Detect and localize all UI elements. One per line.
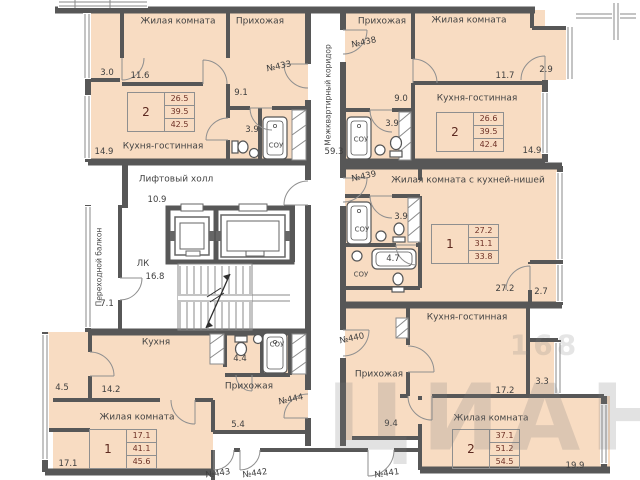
apt439-bath1-label: СОУ: [355, 227, 370, 234]
apt444-living-room-label: Жилая комната: [100, 414, 175, 423]
apt433-area-table: 2 26.5 39.5 42.5: [127, 92, 195, 132]
window: [541, 92, 549, 154]
apt438-living-room-label: Жилая комната: [432, 17, 507, 26]
watermark-logo: ЦИАН: [327, 365, 640, 472]
window: [83, 13, 91, 79]
vent-shaft: [292, 334, 306, 374]
vent-shaft: [408, 198, 420, 242]
apt433-rooms-count: 2: [128, 93, 165, 131]
window: [41, 334, 49, 460]
vent-shaft: [292, 110, 306, 160]
stairwell-label: ЛК: [137, 260, 149, 269]
apt438-balcony-area: 2.9: [539, 66, 553, 75]
toilet: [393, 223, 405, 242]
bathtub: [347, 202, 371, 244]
transfer-balcony-area: 7.1: [100, 300, 114, 309]
apt433-kitchen-area: 14.9: [95, 148, 114, 157]
apt439-area-living: 27.2: [469, 225, 498, 238]
sink: [376, 231, 386, 241]
window: [566, 26, 574, 80]
apt439-area-heated: 31.1: [469, 238, 498, 251]
toilet: [392, 273, 404, 292]
inter-apartment-corridor-area: 59.3: [325, 148, 344, 157]
transfer-balcony-label: Переходной балкон: [95, 228, 103, 307]
watermark-digits: 168: [510, 329, 580, 362]
inter-apartment-corridor-label: Межквартирный коридор: [324, 44, 332, 146]
apt433-bath-area: 3.9: [245, 126, 259, 135]
bathtub: [263, 117, 287, 159]
apt444-balcony-area: 4.5: [55, 384, 69, 393]
apt444-hall-fill: [210, 400, 308, 432]
sink: [250, 149, 259, 158]
apt439-main-room-area: 27.2: [496, 285, 515, 294]
apt439-bath2-area: 4.7: [386, 255, 400, 264]
apt440-kitchen-label: Кухня-гостинная: [427, 314, 508, 323]
window: [84, 206, 92, 328]
apt438-hall-area: 9.0: [394, 95, 408, 104]
apt438-area-table: 2 26.6 39.5 42.4: [436, 112, 504, 152]
apt439-bath1-area: 3.9: [394, 213, 408, 222]
apt438-rooms-count: 2: [437, 113, 474, 151]
apt439-bath2-label: СОУ: [354, 272, 369, 279]
apt438-living-room-area: 11.7: [496, 72, 515, 81]
apt444-area-heated: 41.1: [127, 443, 156, 456]
apt439-area-table: 1 27.2 31.1 33.8: [431, 224, 499, 264]
apt444-rooms-count: 1: [90, 430, 127, 468]
window: [556, 264, 564, 302]
apt438-bath-label: СОУ: [354, 137, 369, 144]
bathtub: [263, 333, 287, 373]
apt433-living-room-label: Жилая комната: [141, 18, 216, 27]
apt438-hall-label: Прихожая: [358, 18, 406, 27]
apt438-kitchen-label: Кухня-гостинная: [437, 95, 518, 104]
lift-hall-label: Лифтовый холл: [139, 176, 214, 185]
apt433-hall-label: Прихожая: [236, 18, 284, 27]
apt444-hall-label: Прихожая: [225, 383, 273, 392]
sink: [352, 251, 362, 261]
sink: [375, 145, 385, 155]
apt444-living-room-area: 17.1: [59, 460, 78, 469]
apt438-area-heated: 39.5: [474, 126, 503, 139]
apt433-bath-label: СОУ: [269, 143, 284, 150]
apt444-balcony-fill: [45, 332, 90, 430]
vent-shaft: [210, 334, 224, 364]
apt444-hall-area: 5.4: [231, 421, 245, 430]
apt444-kitchen-label: Кухня: [142, 339, 170, 348]
apt433-hall-area: 9.1: [234, 89, 248, 98]
sink: [254, 335, 263, 344]
apt438-area-living: 26.6: [474, 113, 503, 126]
window: [575, 12, 637, 20]
toilet: [235, 336, 247, 356]
apt444-area-total: 45.6: [127, 456, 156, 468]
elevators: [168, 204, 292, 262]
apt439-balcony-area: 2.7: [534, 288, 548, 297]
apt439-area-total: 33.8: [469, 251, 498, 263]
apt439-main-room-label: Жилая комната с кухней-нишей: [391, 177, 545, 186]
apt438-kitchen-area: 14.9: [523, 147, 542, 156]
vent-shaft: [396, 318, 408, 338]
apt433-kitchen-label: Кухня-гостинная: [123, 143, 204, 152]
apt433-area-living: 26.5: [165, 93, 194, 106]
window: [556, 172, 564, 260]
apt433-balcony-area: 3.0: [100, 69, 114, 78]
toilet: [232, 141, 248, 153]
floor-plan: Жилая комната Прихожая №433 3.0 11.6 9.1…: [0, 0, 640, 480]
apt444-wc-area: 4.4: [233, 355, 247, 364]
toilet: [390, 137, 402, 158]
staircase: [178, 264, 290, 330]
apt438-bath-area: 3.9: [385, 120, 399, 129]
apt444-kitchen-area: 14.2: [102, 386, 121, 395]
apt444-area-living: 17.1: [127, 430, 156, 443]
apt444-bath-label: СОУ: [270, 342, 285, 349]
apt433-area-heated: 39.5: [165, 106, 194, 119]
window: [83, 95, 91, 159]
apt433-living-room-area: 11.6: [131, 72, 150, 81]
stairwell-area: 16.8: [146, 273, 165, 282]
apt433-area-total: 42.5: [165, 119, 194, 131]
apt438-area-total: 42.4: [474, 139, 503, 151]
apt439-rooms-count: 1: [432, 225, 469, 263]
window: [612, 2, 620, 42]
lift-hall-area: 10.9: [148, 196, 167, 205]
apt444-area-table: 1 17.1 41.1 45.6: [89, 429, 157, 469]
window: [58, 0, 148, 8]
